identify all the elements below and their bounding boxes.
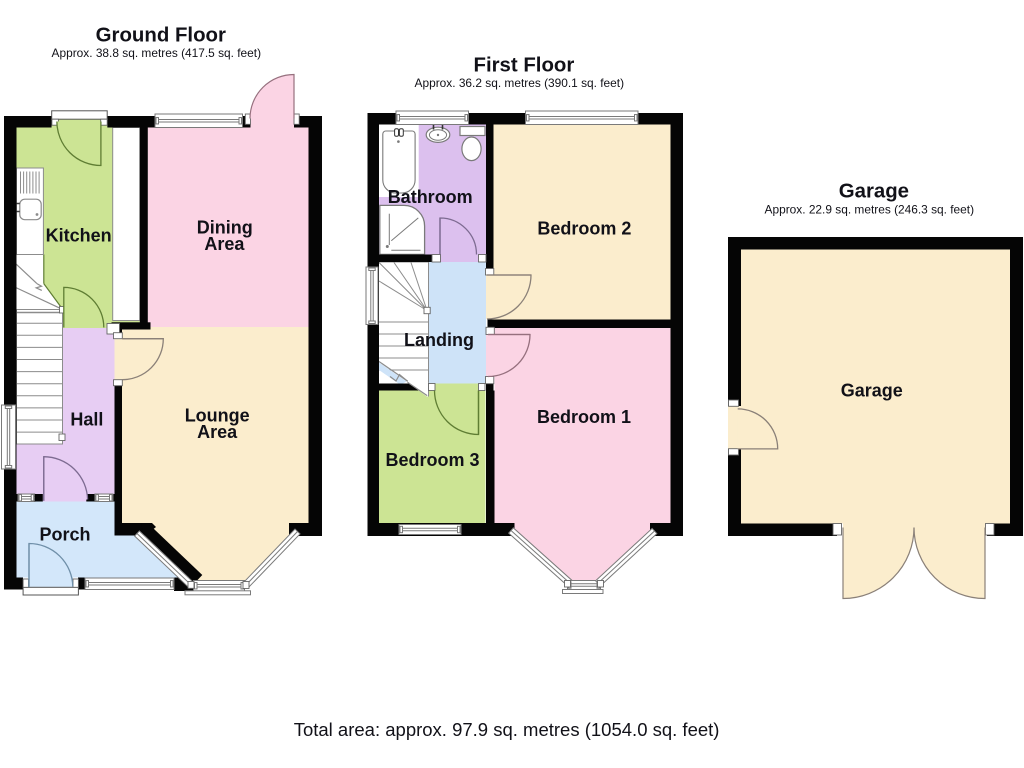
svg-text:Approx. 36.2 sq. metres (390.1: Approx. 36.2 sq. metres (390.1 sq. feet) [415, 76, 625, 90]
svg-text:Landing: Landing [404, 330, 474, 350]
svg-text:Ground Floor: Ground Floor [96, 25, 226, 47]
svg-text:Garage: Garage [839, 181, 909, 203]
svg-text:Approx. 38.8 sq. metres (417.5: Approx. 38.8 sq. metres (417.5 sq. feet) [52, 46, 262, 60]
svg-text:Area: Area [204, 234, 245, 254]
svg-text:Bedroom 1: Bedroom 1 [537, 407, 631, 427]
svg-text:Garage: Garage [841, 380, 903, 400]
svg-text:Bedroom 3: Bedroom 3 [385, 450, 479, 470]
svg-text:Bedroom 2: Bedroom 2 [537, 219, 631, 239]
svg-text:Area: Area [197, 422, 238, 442]
svg-text:Porch: Porch [39, 525, 90, 545]
svg-text:Approx. 22.9 sq. metres (246.3: Approx. 22.9 sq. metres (246.3 sq. feet) [765, 202, 975, 216]
svg-text:First Floor: First Floor [473, 55, 574, 77]
svg-text:Bathroom: Bathroom [388, 187, 473, 207]
svg-text:Kitchen: Kitchen [46, 225, 112, 245]
svg-text:Hall: Hall [70, 409, 103, 429]
svg-text:Total area: approx. 97.9 sq. m: Total area: approx. 97.9 sq. metres (105… [294, 719, 720, 740]
